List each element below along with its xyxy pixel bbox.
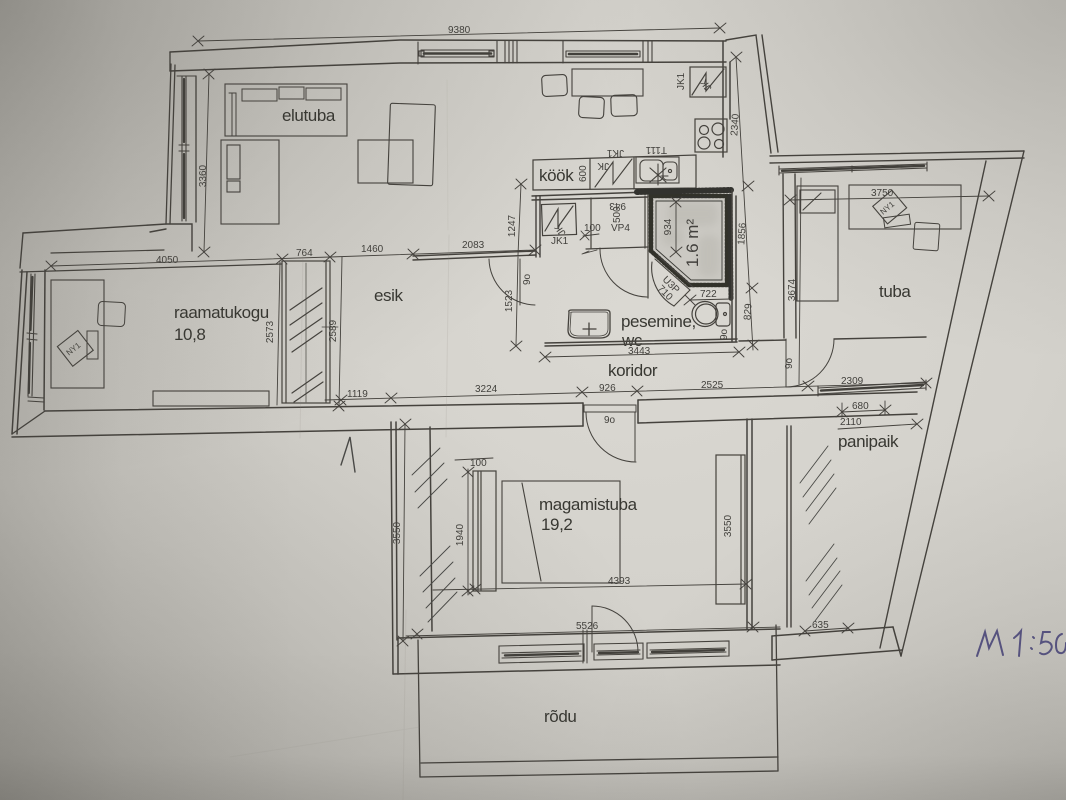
svg-text:2340: 2340 [729, 113, 742, 136]
svg-text:JK1: JK1 [551, 236, 569, 247]
svg-text:4050: 4050 [156, 255, 179, 266]
svg-text:19,2: 19,2 [541, 515, 573, 534]
svg-text:JK: JK [597, 160, 609, 171]
svg-text:pesemine,: pesemine, [621, 312, 696, 331]
svg-text:panipaik: panipaik [838, 432, 899, 451]
svg-text:rõdu: rõdu [544, 707, 576, 726]
svg-text:2573: 2573 [265, 320, 276, 343]
svg-text:JK1: JK1 [606, 147, 624, 158]
svg-text:VP4: VP4 [611, 223, 630, 234]
svg-text:1856: 1856 [736, 222, 749, 245]
svg-text:3674: 3674 [787, 278, 798, 301]
svg-text:tuba: tuba [879, 282, 911, 301]
svg-text:köök: köök [539, 166, 574, 185]
svg-text:9o: 9o [719, 328, 730, 340]
svg-text:680: 680 [852, 401, 869, 412]
svg-text:100: 100 [470, 458, 487, 469]
svg-text:9o: 9o [522, 273, 533, 285]
svg-text:764: 764 [296, 248, 313, 259]
svg-text:magamistuba: magamistuba [539, 495, 638, 514]
svg-text:635: 635 [812, 620, 829, 631]
svg-text:4393: 4393 [608, 576, 631, 587]
svg-text:raamatukogu: raamatukogu [174, 303, 269, 322]
svg-text:600: 600 [578, 165, 589, 182]
svg-text:3750: 3750 [871, 188, 894, 199]
svg-text:9o: 9o [784, 357, 795, 369]
svg-text:2525: 2525 [701, 380, 724, 391]
svg-text:2083: 2083 [462, 240, 485, 251]
svg-text:1940: 1940 [455, 523, 466, 546]
svg-text:elutuba: elutuba [282, 106, 336, 125]
svg-text:1523: 1523 [504, 289, 515, 312]
svg-text:koridor: koridor [608, 361, 658, 380]
svg-text:9380: 9380 [448, 25, 471, 36]
svg-text:esik: esik [374, 286, 404, 305]
svg-text:2110: 2110 [840, 417, 862, 428]
svg-text:1119: 1119 [347, 389, 368, 400]
svg-text:3550: 3550 [723, 514, 734, 537]
svg-text:1247: 1247 [507, 214, 518, 237]
svg-text:500: 500 [612, 206, 623, 223]
svg-text:3224: 3224 [475, 384, 498, 395]
svg-text:829: 829 [742, 303, 754, 321]
svg-text:3550: 3550 [392, 521, 403, 544]
svg-text:9o: 9o [604, 415, 616, 426]
svg-text:722: 722 [700, 289, 717, 300]
svg-text:2589: 2589 [328, 319, 339, 342]
svg-text:T111: T111 [645, 144, 667, 155]
svg-text:926: 926 [599, 383, 616, 394]
svg-text:1.6 m²: 1.6 m² [683, 219, 702, 268]
svg-text:10,8: 10,8 [174, 325, 206, 344]
svg-text:JK1: JK1 [676, 72, 687, 90]
svg-text:100: 100 [584, 223, 601, 234]
svg-text:3443: 3443 [628, 346, 651, 357]
svg-text:1460: 1460 [361, 244, 384, 255]
svg-text:3360: 3360 [198, 164, 209, 187]
svg-text:934: 934 [663, 218, 674, 235]
